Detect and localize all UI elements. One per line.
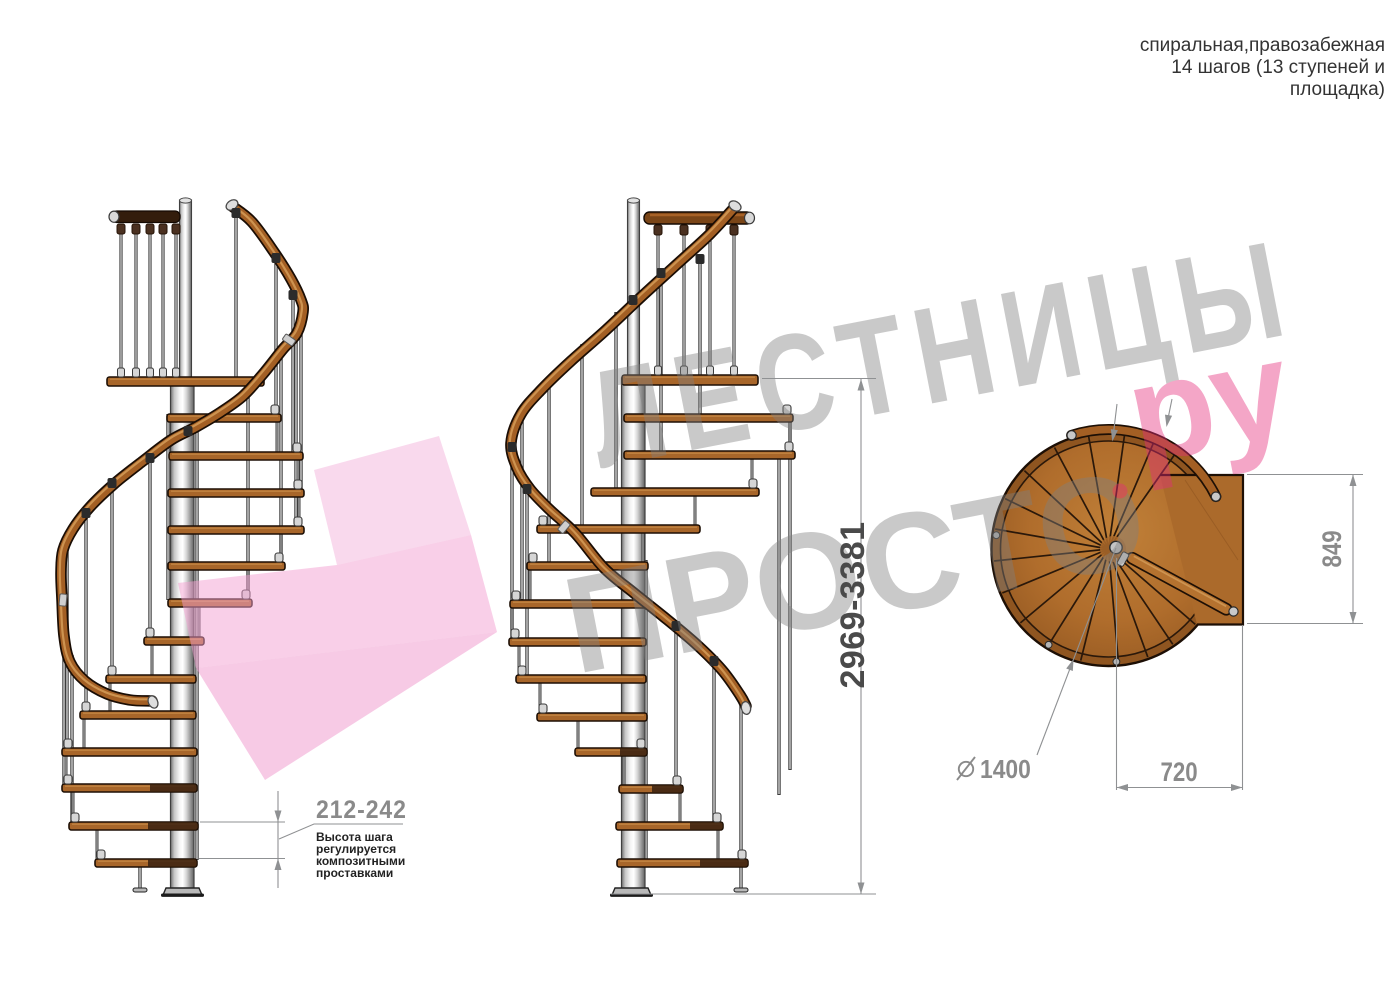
svg-text:площадка): площадка) xyxy=(1290,79,1385,100)
svg-text:1400: 1400 xyxy=(980,756,1031,785)
svg-text:ру: ру xyxy=(1115,311,1302,494)
svg-text:849: 849 xyxy=(1318,530,1347,567)
svg-text:проставками: проставками xyxy=(316,866,393,880)
svg-text:212-242: 212-242 xyxy=(316,796,407,824)
svg-text:720: 720 xyxy=(1160,758,1197,787)
svg-text:спиральная,правозабежная: спиральная,правозабежная xyxy=(1140,35,1385,56)
svg-text:14 шагов (13 ступеней и: 14 шагов (13 ступеней и xyxy=(1171,57,1385,78)
svg-text:2969-3381: 2969-3381 xyxy=(834,521,872,688)
